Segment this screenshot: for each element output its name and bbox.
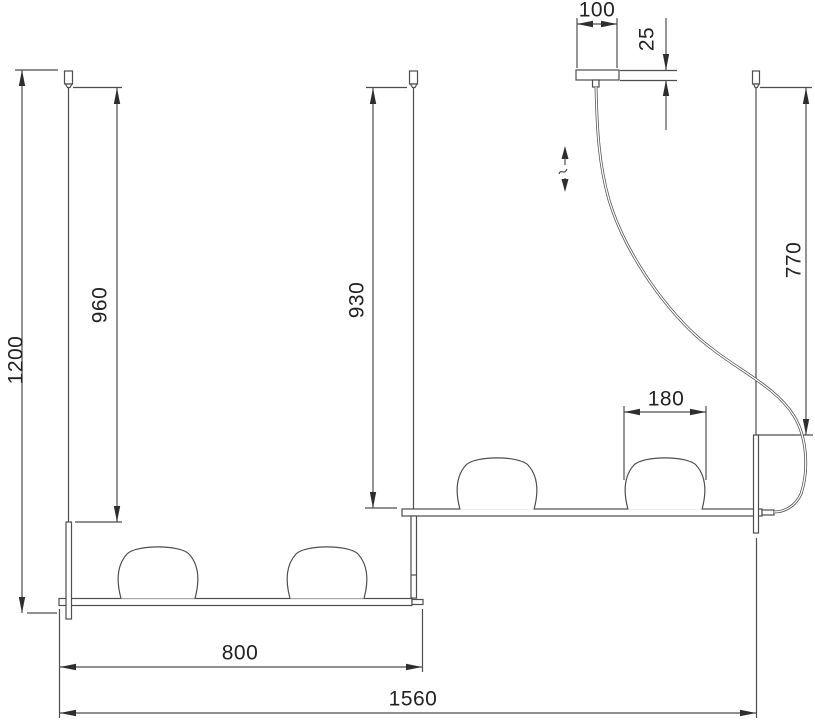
- canopy: [576, 70, 619, 87]
- shade-lower-right: [287, 547, 367, 599]
- dim-label-overall-height: 1200: [6, 336, 27, 385]
- rod-tube-right: [754, 435, 759, 533]
- dimension-canopy-width: [577, 18, 617, 68]
- ceiling-fitting-right: [753, 71, 760, 88]
- dim-label-left-rod-drop: 960: [90, 287, 111, 324]
- shade-lower-left: [118, 547, 198, 599]
- dim-label-shade-diameter: 180: [648, 389, 685, 410]
- dim-label-cable-rod-drop: 770: [784, 242, 805, 279]
- dimension-middle-rod-drop: [365, 88, 407, 509]
- technical-drawing-canvas: 1200 960 930 770 100 25 180 800 1560: [0, 0, 815, 720]
- ceiling-fitting-left: [65, 71, 73, 88]
- shade-upper-right: [625, 458, 705, 510]
- upper-bar: [402, 509, 774, 516]
- rod-tube-middle: [411, 516, 417, 598]
- height-adjust-icon: [559, 146, 569, 192]
- power-cable: [596, 87, 806, 512]
- dim-label-canopy-width: 100: [579, 0, 616, 21]
- dim-label-middle-rod-drop: 930: [347, 282, 368, 319]
- dim-label-overall-length: 1560: [389, 689, 438, 710]
- dim-label-canopy-height: 25: [637, 27, 658, 51]
- shade-upper-left: [457, 458, 537, 510]
- lower-bar: [59, 599, 423, 606]
- dim-label-lower-bar-length: 800: [222, 643, 259, 664]
- drawing-linework: [0, 0, 815, 720]
- rod-tube-left: [66, 522, 72, 619]
- ceiling-fitting-middle: [410, 71, 418, 88]
